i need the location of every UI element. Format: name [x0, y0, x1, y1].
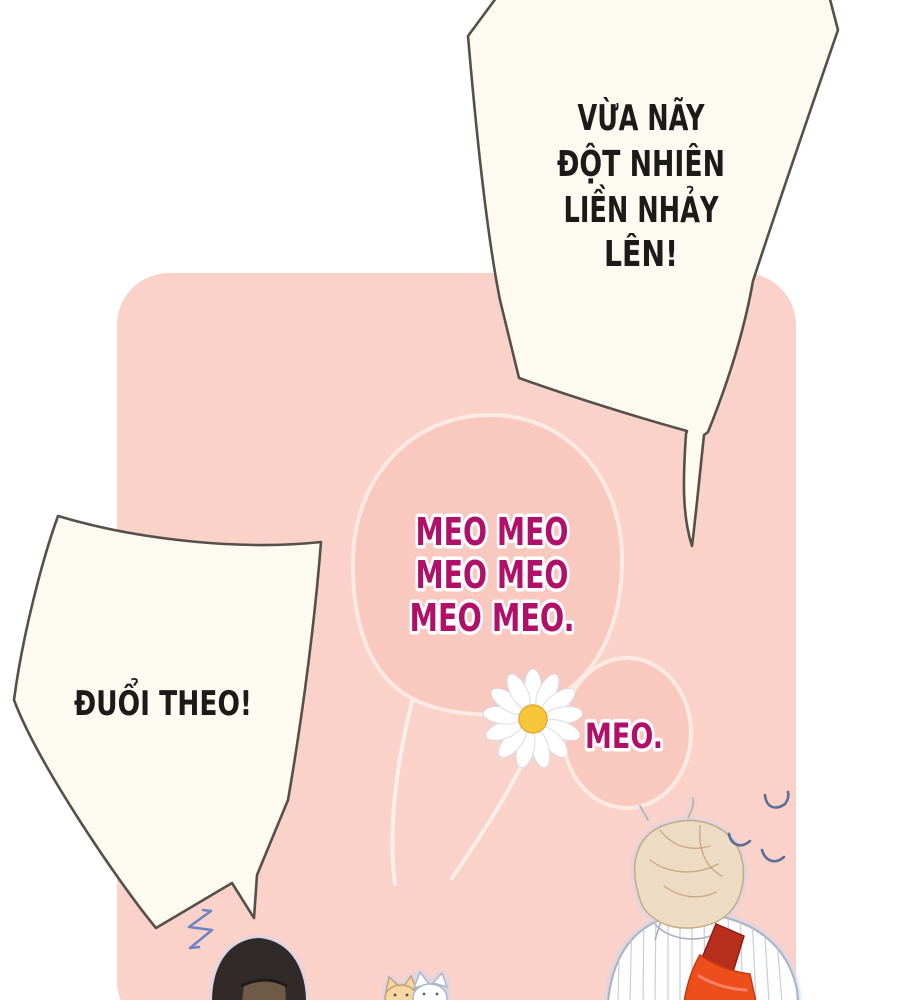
svg-text:MEO MEO: MEO MEO [416, 510, 569, 554]
speech-text-chase: ĐUỔI THEO! [74, 677, 252, 724]
svg-text:LÊN!: LÊN! [604, 233, 678, 275]
svg-text:ĐỘT NHIÊN: ĐỘT NHIÊN [557, 142, 725, 185]
daisy-center [519, 705, 547, 733]
comic-page: MEO MEO MEO MEO MEO MEO. MEO. [0, 0, 900, 1000]
svg-text:LIỀN NHẢY: LIỀN NHẢY [564, 184, 720, 231]
meow-text-large: MEO MEO MEO MEO MEO MEO. [410, 510, 575, 640]
svg-text:MEO MEO.: MEO MEO. [410, 596, 575, 640]
svg-text:MEO MEO: MEO MEO [416, 553, 569, 597]
comic-artwork: MEO MEO MEO MEO MEO MEO. MEO. [0, 0, 900, 1000]
svg-text:VỪA NÃY: VỪA NÃY [578, 97, 706, 139]
meow-text-small: MEO. [585, 717, 663, 757]
hair [635, 821, 744, 929]
